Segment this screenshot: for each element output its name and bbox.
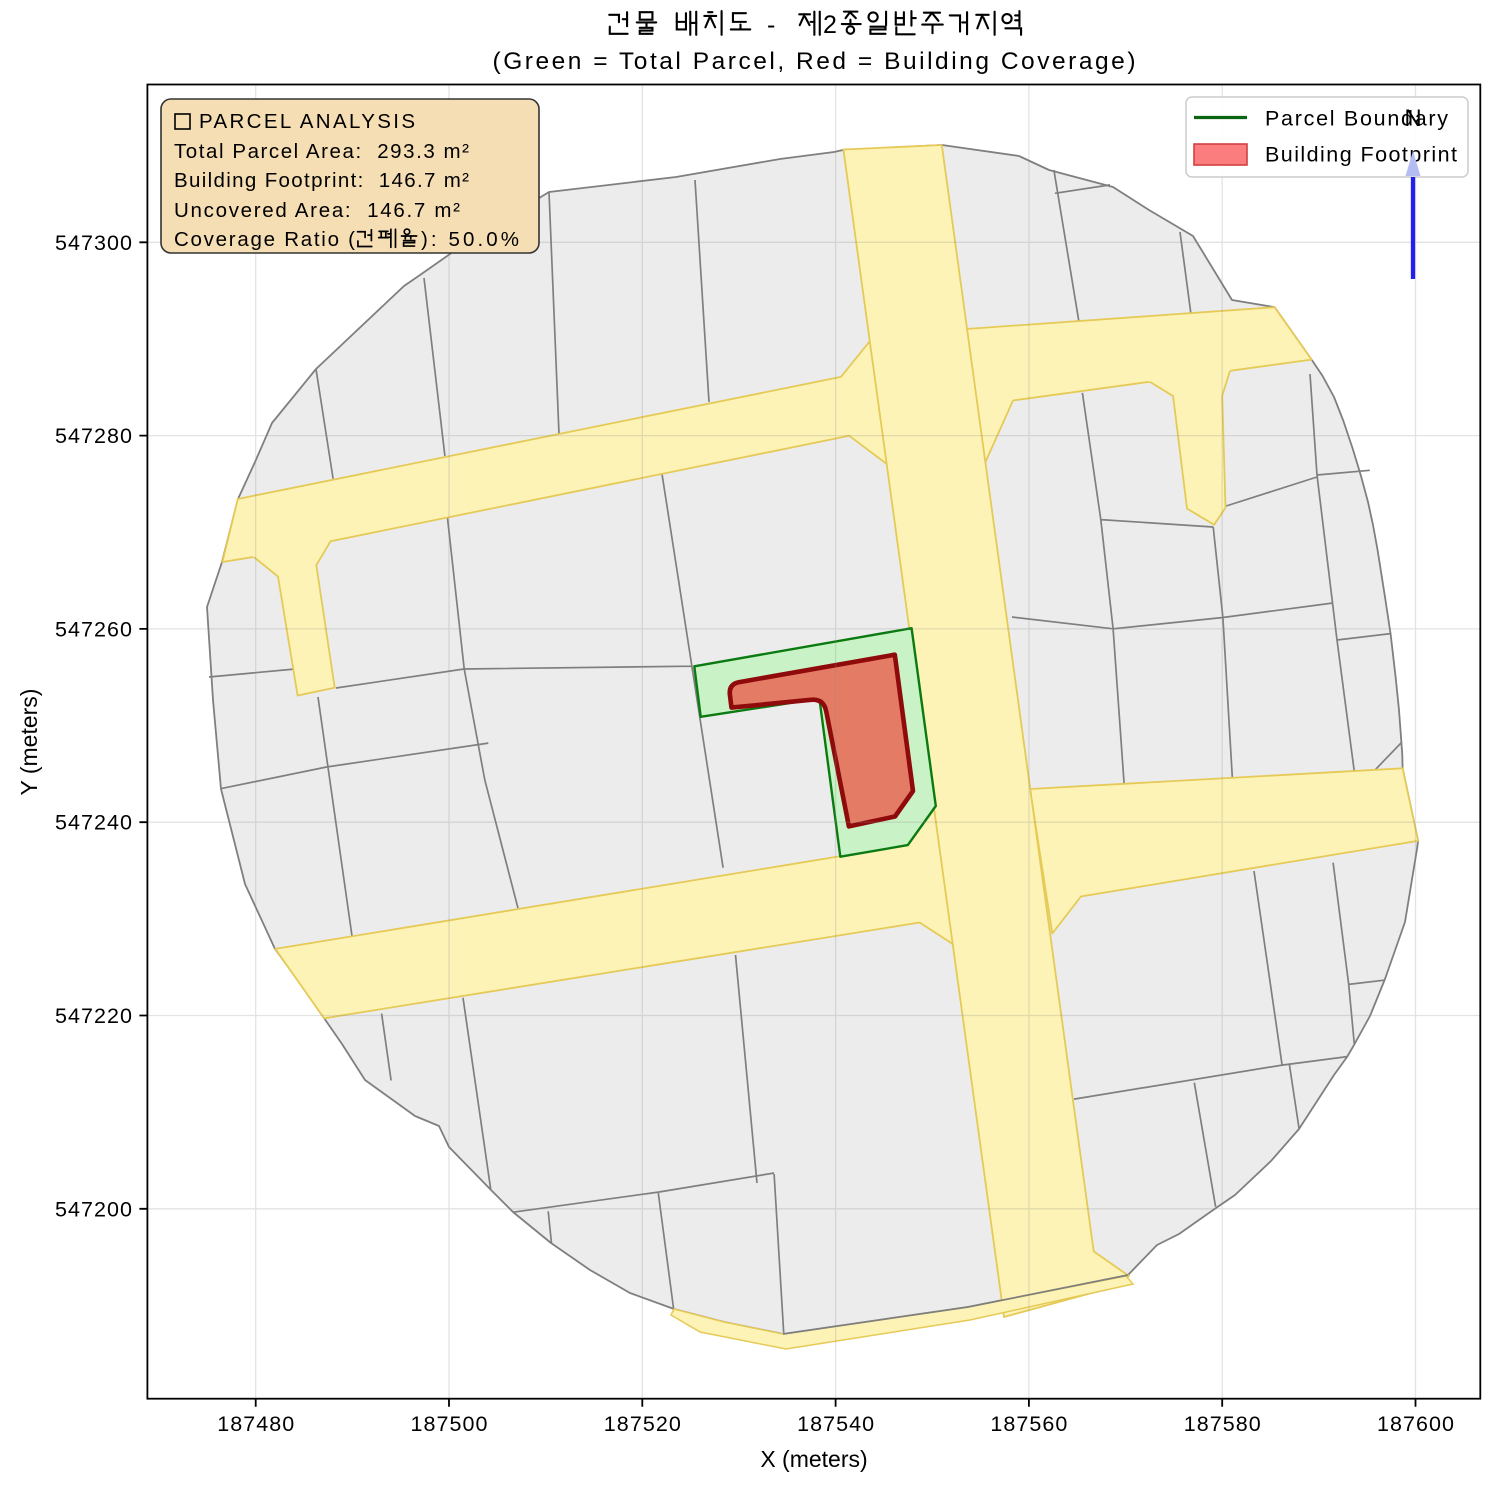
svg-text:187560: 187560	[990, 1412, 1067, 1436]
svg-text:Coverage Ratio (: Coverage Ratio (	[174, 228, 355, 251]
svg-text:X (meters): X (meters)	[760, 1446, 867, 1472]
svg-text:187480: 187480	[217, 1412, 294, 1436]
svg-text:-: -	[767, 11, 775, 39]
svg-text:187520: 187520	[604, 1412, 681, 1436]
svg-text:187540: 187540	[797, 1412, 874, 1436]
svg-text:547260: 547260	[55, 617, 132, 641]
svg-text:547280: 547280	[55, 424, 132, 448]
svg-text:N: N	[1404, 105, 1421, 132]
svg-text:PARCEL ANALYSIS: PARCEL ANALYSIS	[199, 110, 415, 133]
svg-text:Building Footprint: Building Footprint	[1265, 143, 1457, 167]
svg-text:2: 2	[823, 11, 837, 39]
svg-text:547200: 547200	[55, 1197, 132, 1221]
svg-text:547220: 547220	[55, 1004, 132, 1028]
svg-text:547240: 547240	[55, 811, 132, 835]
svg-text:187500: 187500	[411, 1412, 488, 1436]
svg-text:547300: 547300	[55, 231, 132, 255]
svg-text:Building Footprint: 146.7 m²: Building Footprint: 146.7 m²	[174, 169, 469, 192]
svg-text:): 50.0%: ): 50.0%	[421, 228, 519, 251]
svg-text:Y (meters): Y (meters)	[16, 689, 42, 796]
svg-text:Total Parcel Area: 293.3 m²: Total Parcel Area: 293.3 m²	[174, 140, 469, 163]
svg-text:187600: 187600	[1377, 1412, 1454, 1436]
svg-text:187580: 187580	[1184, 1412, 1261, 1436]
